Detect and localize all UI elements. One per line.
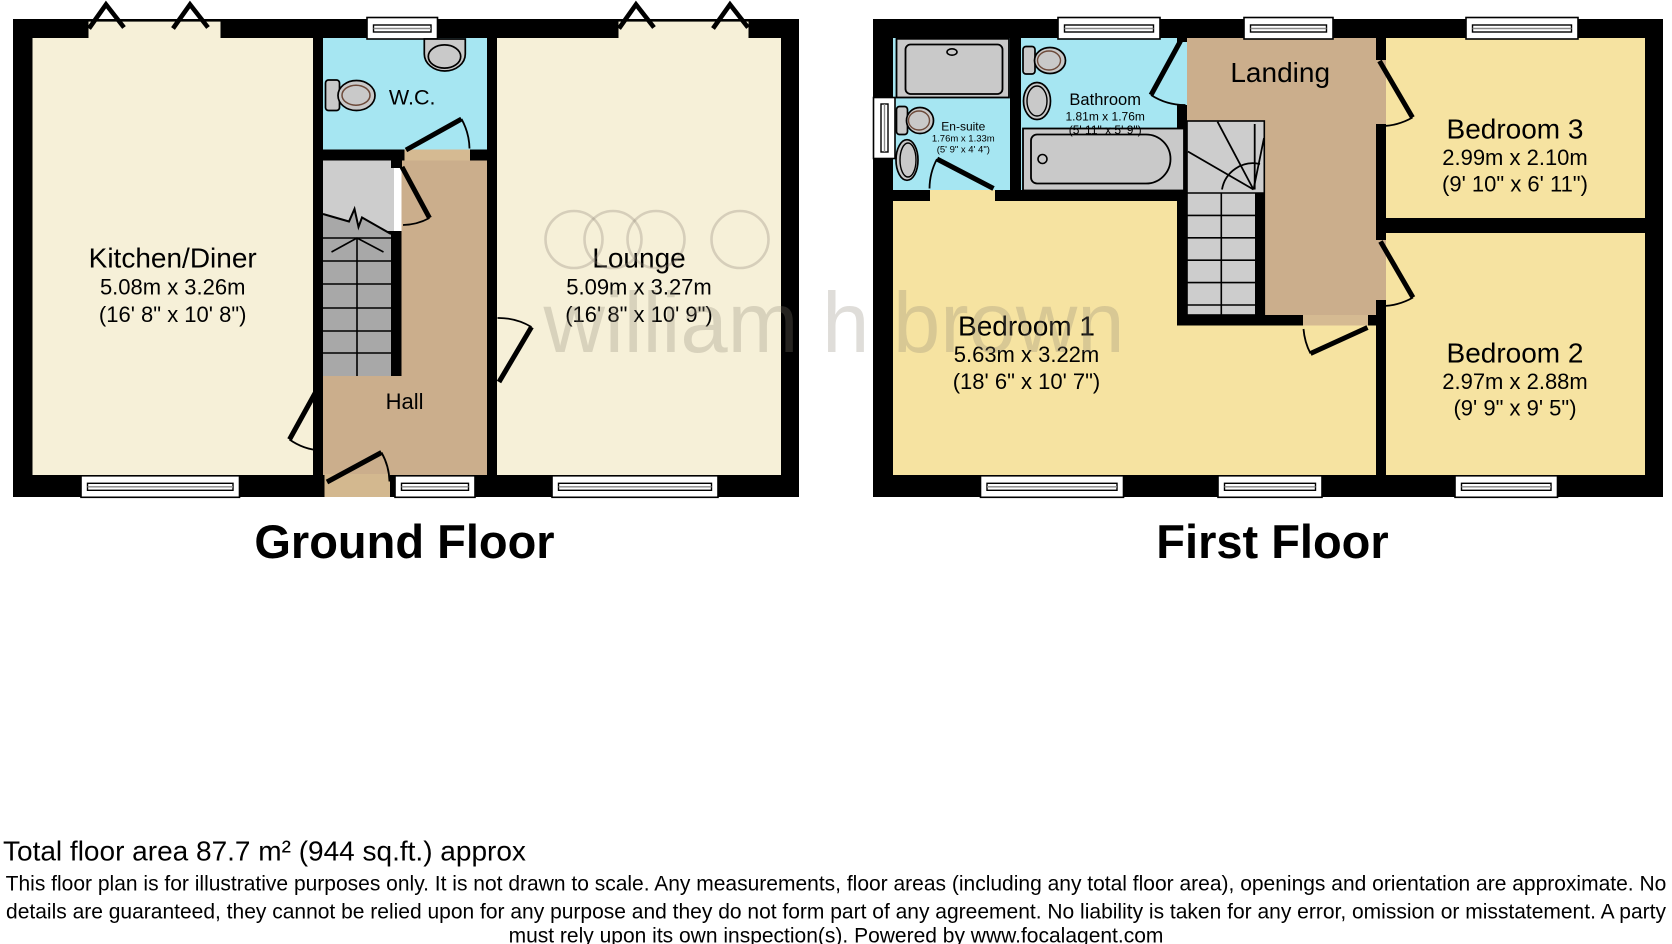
svg-text:(5' 9" x 4' 4"): (5' 9" x 4' 4") xyxy=(937,144,990,155)
svg-text:must rely upon its own inspect: must rely upon its own inspection(s). Po… xyxy=(509,925,1164,944)
svg-text:Total floor area 87.7 m² (944: Total floor area 87.7 m² (944 sq.ft.) ap… xyxy=(3,836,526,867)
svg-text:Bedroom 2: Bedroom 2 xyxy=(1447,337,1584,368)
svg-text:First Floor: First Floor xyxy=(1156,515,1388,568)
svg-text:details are guaranteed, they c: details are guaranteed, they cannot be r… xyxy=(6,901,1666,924)
svg-text:2.99m x 2.10m: 2.99m x 2.10m xyxy=(1442,145,1588,170)
svg-text:(5' 11" x 5' 9"): (5' 11" x 5' 9") xyxy=(1069,123,1142,137)
svg-text:(9' 9" x 9' 5"): (9' 9" x 9' 5") xyxy=(1453,396,1576,421)
svg-text:5.08m x 3.26m: 5.08m x 3.26m xyxy=(100,275,246,300)
svg-text:(9' 10" x 6' 11"): (9' 10" x 6' 11") xyxy=(1442,172,1588,197)
svg-text:Bedroom 3: Bedroom 3 xyxy=(1447,114,1584,145)
svg-text:En-suite: En-suite xyxy=(941,120,985,134)
svg-text:(18' 6" x 10' 7"): (18' 6" x 10' 7") xyxy=(953,369,1101,394)
svg-text:Ground Floor: Ground Floor xyxy=(254,515,554,568)
svg-text:W.C.: W.C. xyxy=(389,86,436,110)
svg-text:Landing: Landing xyxy=(1230,57,1330,88)
svg-text:Bathroom: Bathroom xyxy=(1069,91,1141,109)
svg-text:Kitchen/Diner: Kitchen/Diner xyxy=(89,242,257,273)
svg-text:1.81m x 1.76m: 1.81m x 1.76m xyxy=(1066,110,1145,124)
svg-text:Hall: Hall xyxy=(386,389,424,414)
svg-text:This floor plan is for illustr: This floor plan is for illustrative purp… xyxy=(6,873,1667,896)
svg-text:william h brown: william h brown xyxy=(542,276,1124,371)
svg-text:Lounge: Lounge xyxy=(592,242,685,273)
svg-text:1.76m x 1.33m: 1.76m x 1.33m xyxy=(932,134,995,145)
svg-text:(16' 8" x 10' 8"): (16' 8" x 10' 8") xyxy=(99,302,247,327)
svg-text:2.97m x 2.88m: 2.97m x 2.88m xyxy=(1442,369,1588,394)
